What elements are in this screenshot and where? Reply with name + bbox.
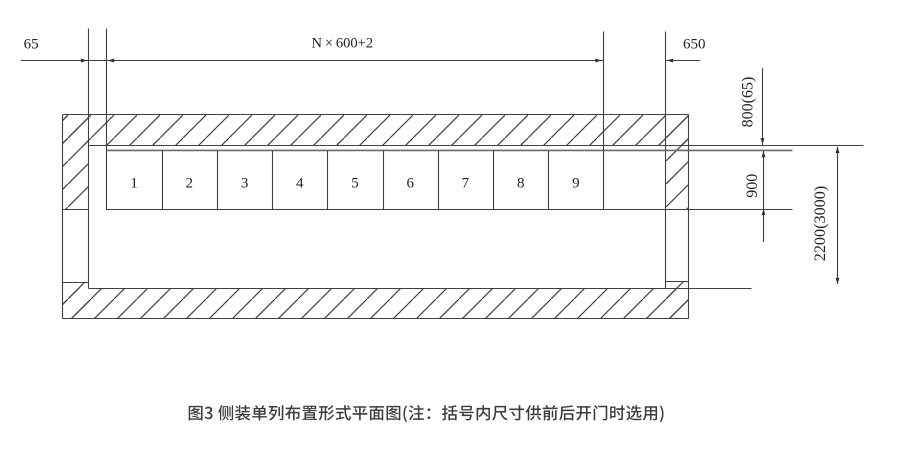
- svg-text:7: 7: [462, 175, 470, 191]
- svg-text:800(65): 800(65): [740, 77, 757, 128]
- svg-text:650: 650: [683, 37, 706, 53]
- svg-text:N × 600+2: N × 600+2: [311, 36, 373, 52]
- svg-text:4: 4: [296, 175, 304, 191]
- svg-text:6: 6: [406, 175, 414, 191]
- svg-text:1: 1: [130, 175, 138, 191]
- svg-text:8: 8: [517, 175, 525, 191]
- svg-text:3: 3: [241, 175, 249, 191]
- svg-text:9: 9: [572, 175, 580, 191]
- svg-text:900: 900: [744, 174, 761, 198]
- svg-text:65: 65: [24, 37, 39, 53]
- svg-text:5: 5: [351, 175, 359, 191]
- svg-text:2: 2: [186, 175, 194, 191]
- svg-text:2200(3000): 2200(3000): [811, 186, 829, 262]
